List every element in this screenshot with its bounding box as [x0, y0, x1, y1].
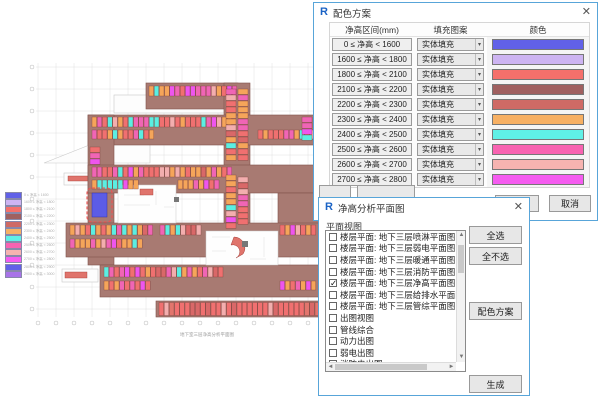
plan-view-item[interactable]: ✓楼层平面: 地下三层净高平面图	[326, 277, 456, 289]
horizontal-scrollbar[interactable]: ◄ ►	[326, 362, 456, 371]
legend-label: 2400 ≤ 净高 < 2500	[24, 236, 54, 241]
plan-view-item-label: 楼层平面: 地下三层消防平面图	[340, 266, 455, 278]
legend-item: 2800 ≤ 净高 < 2900	[5, 264, 54, 271]
color-scheme-row: 2300 ≤ 净高 < 2400实体填充▾	[330, 112, 589, 127]
color-scheme-row: 0 ≤ 净高 < 1600实体填充▾	[330, 37, 589, 52]
color-swatch[interactable]	[492, 114, 584, 125]
legend-label: 1800 ≤ 净高 < 2100	[24, 207, 54, 212]
floor-plan-canvas[interactable]: 地下室三层净高分析平面图	[28, 55, 338, 345]
plan-view-item-label: 楼层平面: 地下三层喷淋平面图	[340, 231, 455, 243]
color-swatch-cell	[487, 172, 589, 187]
column-clearance-range: 净高区间(mm)	[330, 24, 414, 36]
chevron-down-icon[interactable]: ▾	[475, 84, 483, 95]
plan-view-item-label: 动力出图	[340, 335, 374, 347]
plan-view-item-label: 管线综合	[340, 324, 374, 336]
color-swatch[interactable]	[492, 99, 584, 110]
fill-pattern-select[interactable]: 实体填充▾	[417, 98, 484, 111]
color-swatch-cell	[487, 82, 589, 97]
plan-view-item-label: 弱电出图	[340, 347, 374, 359]
cancel-button[interactable]: 取消	[549, 195, 591, 212]
color-scheme-button[interactable]: 配色方案	[469, 302, 522, 320]
plan-view-item-label: 楼层平面: 地下三层管综平面图	[340, 300, 455, 312]
color-swatch-cell	[487, 112, 589, 127]
plan-views-dialog: R 净高分析平面图 ✕ 平面视图 楼层平面: 地下三层喷淋平面图楼层平面: 地下…	[318, 197, 530, 396]
clearance-range-button[interactable]: 2500 ≤ 净高 < 2600	[332, 143, 412, 156]
chevron-down-icon[interactable]: ▾	[475, 114, 483, 125]
plan-view-item[interactable]: 楼层平面: 地下三层弱电平面图	[326, 243, 456, 255]
legend-label: 1600 ≤ 净高 < 1800	[24, 200, 54, 205]
plan-view-item-label: 楼层平面: 地下三层暖通平面图	[340, 254, 455, 266]
plan-view-item[interactable]: 楼层平面: 地下三层暖通平面图	[326, 254, 456, 266]
scroll-down-icon[interactable]: ▼	[457, 353, 466, 362]
plan-view-item[interactable]: 动力出图	[326, 335, 456, 347]
color-swatch[interactable]	[492, 54, 584, 65]
chevron-down-icon[interactable]: ▾	[475, 99, 483, 110]
plan-views-list: 楼层平面: 地下三层喷淋平面图楼层平面: 地下三层弱电平面图楼层平面: 地下三层…	[326, 231, 456, 362]
legend-swatch	[5, 264, 22, 271]
color-scheme-row: 2400 ≤ 净高 < 2500实体填充▾	[330, 127, 589, 142]
plan-views-listbox: 楼层平面: 地下三层喷淋平面图楼层平面: 地下三层弱电平面图楼层平面: 地下三层…	[325, 230, 466, 372]
checkbox[interactable]	[329, 314, 337, 322]
legend-item: 2700 ≤ 净高 < 2800	[5, 257, 54, 264]
close-icon[interactable]: ✕	[582, 7, 591, 18]
checkbox[interactable]	[329, 349, 337, 357]
color-swatch-cell	[487, 127, 589, 142]
color-scheme-row: 1800 ≤ 净高 < 2100实体填充▾	[330, 67, 589, 82]
fill-pattern-select[interactable]: 实体填充▾	[417, 173, 484, 186]
legend-item: 2200 ≤ 净高 < 2300	[5, 221, 54, 228]
fill-pattern-select[interactable]: 实体填充▾	[417, 113, 484, 126]
color-scheme-table-header: 净高区间(mm) 填充图案 颜色	[330, 23, 589, 37]
checkbox[interactable]	[329, 291, 337, 299]
plan-view-item[interactable]: 楼层平面: 地下三层管综平面图	[326, 301, 456, 313]
plan-caption: 地下室三层净高分析平面图	[180, 331, 234, 338]
color-scheme-title: 配色方案	[333, 6, 371, 20]
color-swatch[interactable]	[492, 39, 584, 50]
plan-views-title: 净高分析平面图	[338, 201, 405, 215]
plan-view-item[interactable]: 楼层平面: 地下三层给排水平面图	[326, 289, 456, 301]
scroll-up-icon[interactable]: ▲	[457, 231, 466, 240]
checkbox[interactable]	[329, 233, 337, 241]
legend-item: 1600 ≤ 净高 < 1800	[5, 199, 54, 206]
clearance-range-button[interactable]: 1600 ≤ 净高 < 1800	[332, 53, 412, 66]
legend-swatch	[5, 228, 22, 235]
close-icon[interactable]: ✕	[514, 202, 523, 213]
column-fill-pattern: 填充图案	[414, 24, 487, 36]
color-scheme-table: 净高区间(mm) 填充图案 颜色 0 ≤ 净高 < 1600实体填充▾1600 …	[329, 22, 590, 188]
plan-view-item[interactable]: 出图视图	[326, 312, 456, 324]
clearance-range-button[interactable]: 0 ≤ 净高 < 1600	[332, 38, 412, 51]
chevron-down-icon[interactable]: ▾	[475, 54, 483, 65]
color-scheme-row: 2100 ≤ 净高 < 2200实体填充▾	[330, 82, 589, 97]
legend-swatch	[5, 249, 22, 256]
legend-item: 2600 ≤ 净高 < 2700	[5, 250, 54, 257]
clearance-range-button[interactable]: 2400 ≤ 净高 < 2500	[332, 128, 412, 141]
checkbox[interactable]	[329, 256, 337, 264]
color-swatch[interactable]	[492, 69, 584, 80]
legend-swatch	[5, 192, 22, 199]
legend-swatch	[5, 206, 22, 213]
plan-view-item-label: 楼层平面: 地下三层弱电平面图	[340, 242, 455, 254]
select-all-button[interactable]: 全选	[469, 226, 522, 244]
plan-view-item[interactable]: 管线综合	[326, 324, 456, 336]
legend-label: 2100 ≤ 净高 < 2200	[24, 214, 54, 219]
clearance-legend: 0 ≤ 净高 < 16001600 ≤ 净高 < 18001800 ≤ 净高 <…	[5, 192, 54, 278]
checkbox[interactable]: ✓	[329, 279, 337, 287]
low-clearance-block	[92, 193, 107, 217]
plan-views-titlebar: R 净高分析平面图 ✕	[319, 198, 529, 217]
clearance-range-button[interactable]: 2100 ≤ 净高 < 2200	[332, 83, 412, 96]
legend-swatch	[5, 221, 22, 228]
fill-pattern-select[interactable]: 实体填充▾	[417, 68, 484, 81]
legend-item: 2300 ≤ 净高 < 2400	[5, 228, 54, 235]
color-scheme-row: 2200 ≤ 净高 < 2300实体填充▾	[330, 97, 589, 112]
plan-view-item[interactable]: 楼层平面: 地下三层消防平面图	[326, 266, 456, 278]
legend-item: 2400 ≤ 净高 < 2500	[5, 235, 54, 242]
color-scheme-row: 2500 ≤ 净高 < 2600实体填充▾	[330, 142, 589, 157]
vertical-scrollbar[interactable]: ▲ ▼	[456, 231, 465, 362]
revit-app-icon: R	[325, 202, 333, 213]
legend-label: 2200 ≤ 净高 < 2300	[24, 222, 54, 227]
color-swatch-cell	[487, 157, 589, 172]
plan-view-item-label: 楼层平面: 地下三层净高平面图	[340, 277, 455, 289]
legend-swatch	[5, 199, 22, 206]
legend-item: 2500 ≤ 净高 < 2600	[5, 242, 54, 249]
legend-item: 1800 ≤ 净高 < 2100	[5, 206, 54, 213]
color-scheme-titlebar: R 配色方案 ✕	[314, 3, 597, 22]
checkbox[interactable]	[329, 244, 337, 252]
legend-item: 2100 ≤ 净高 < 2200	[5, 214, 54, 221]
legend-item: 0 ≤ 净高 < 1600	[5, 192, 54, 199]
fill-pattern-select[interactable]: 实体填充▾	[417, 53, 484, 66]
color-swatch[interactable]	[492, 159, 584, 170]
fill-pattern-select[interactable]: 实体填充▾	[417, 128, 484, 141]
chevron-down-icon[interactable]: ▾	[475, 159, 483, 170]
vertical-scroll-thumb[interactable]	[458, 245, 464, 273]
fill-pattern-select[interactable]: 实体填充▾	[417, 158, 484, 171]
legend-label: 2900 ≤ 净高 < 3000	[24, 272, 54, 277]
color-swatch[interactable]	[492, 129, 584, 140]
horizontal-scroll-thumb[interactable]	[335, 364, 427, 370]
checkbox[interactable]	[329, 268, 337, 276]
color-swatch-cell	[487, 37, 589, 52]
select-none-button[interactable]: 全不选	[469, 247, 522, 265]
color-swatch-cell	[487, 97, 589, 112]
checkbox[interactable]	[329, 302, 337, 310]
legend-swatch	[5, 271, 22, 278]
fill-pattern-select[interactable]: 实体填充▾	[417, 38, 484, 51]
chevron-down-icon[interactable]: ▾	[475, 69, 483, 80]
checkbox[interactable]	[329, 337, 337, 345]
legend-label: 0 ≤ 净高 < 1600	[24, 193, 49, 198]
legend-label: 2300 ≤ 净高 < 2400	[24, 229, 54, 234]
plan-view-item[interactable]: 弱电出图	[326, 347, 456, 359]
clearance-range-button[interactable]: 2200 ≤ 净高 < 2300	[332, 98, 412, 111]
legend-item: 2900 ≤ 净高 < 3000	[5, 271, 54, 278]
chevron-down-icon[interactable]: ▾	[475, 39, 483, 50]
clearance-range-button[interactable]: 1800 ≤ 净高 < 2100	[332, 68, 412, 81]
chevron-down-icon[interactable]: ▾	[475, 129, 483, 140]
plan-view-item-label: 出图视图	[340, 312, 374, 324]
chevron-down-icon[interactable]: ▾	[475, 144, 483, 155]
color-swatch[interactable]	[492, 174, 584, 185]
clearance-range-button[interactable]: 2600 ≤ 净高 < 2700	[332, 158, 412, 171]
checkbox[interactable]	[329, 326, 337, 334]
legend-label: 2500 ≤ 净高 < 2600	[24, 243, 54, 248]
color-scheme-table-body: 0 ≤ 净高 < 1600实体填充▾1600 ≤ 净高 < 1800实体填充▾1…	[330, 37, 589, 187]
revit-app-icon: R	[320, 7, 328, 18]
scroll-right-icon[interactable]: ►	[447, 363, 456, 372]
color-swatch-cell	[487, 67, 589, 82]
clearance-range-button[interactable]: 2300 ≤ 净高 < 2400	[332, 113, 412, 126]
plan-view-item-label: 楼层平面: 地下三层给排水平面图	[340, 289, 456, 301]
color-scheme-dialog: R 配色方案 ✕ 净高区间(mm) 填充图案 颜色 0 ≤ 净高 < 1600实…	[313, 2, 598, 221]
legend-label: 2800 ≤ 净高 < 2900	[24, 265, 54, 270]
legend-swatch	[5, 242, 22, 249]
legend-swatch	[5, 213, 22, 220]
color-swatch[interactable]	[492, 144, 584, 155]
color-swatch-cell	[487, 142, 589, 157]
color-scheme-row: 2600 ≤ 净高 < 2700实体填充▾	[330, 157, 589, 172]
column-color: 颜色	[487, 24, 589, 36]
chevron-down-icon[interactable]: ▾	[475, 174, 483, 185]
generate-button[interactable]: 生成	[469, 375, 522, 393]
plan-view-item[interactable]: 楼层平面: 地下三层喷淋平面图	[326, 231, 456, 243]
fill-pattern-select[interactable]: 实体填充▾	[417, 83, 484, 96]
legend-label: 2600 ≤ 净高 < 2700	[24, 250, 54, 255]
color-swatch-cell	[487, 52, 589, 67]
scroll-left-icon[interactable]: ◄	[326, 363, 335, 372]
legend-swatch	[5, 235, 22, 242]
legend-label: 2700 ≤ 净高 < 2800	[24, 257, 54, 262]
legend-swatch	[5, 256, 22, 263]
color-swatch[interactable]	[492, 84, 584, 95]
color-scheme-row: 1600 ≤ 净高 < 1800实体填充▾	[330, 52, 589, 67]
fill-pattern-select[interactable]: 实体填充▾	[417, 143, 484, 156]
